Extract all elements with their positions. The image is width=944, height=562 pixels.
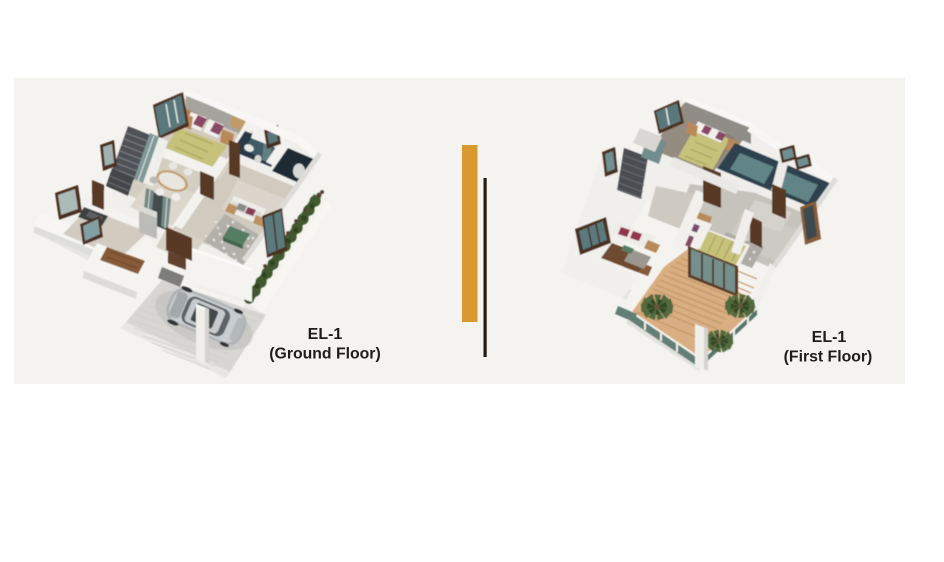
svg-text:EL-1: EL-1	[812, 329, 847, 346]
svg-text:EL-1: EL-1	[308, 326, 343, 343]
svg-text:(First Floor): (First Floor)	[784, 349, 873, 366]
svg-text:(Ground Floor): (Ground Floor)	[269, 346, 380, 363]
